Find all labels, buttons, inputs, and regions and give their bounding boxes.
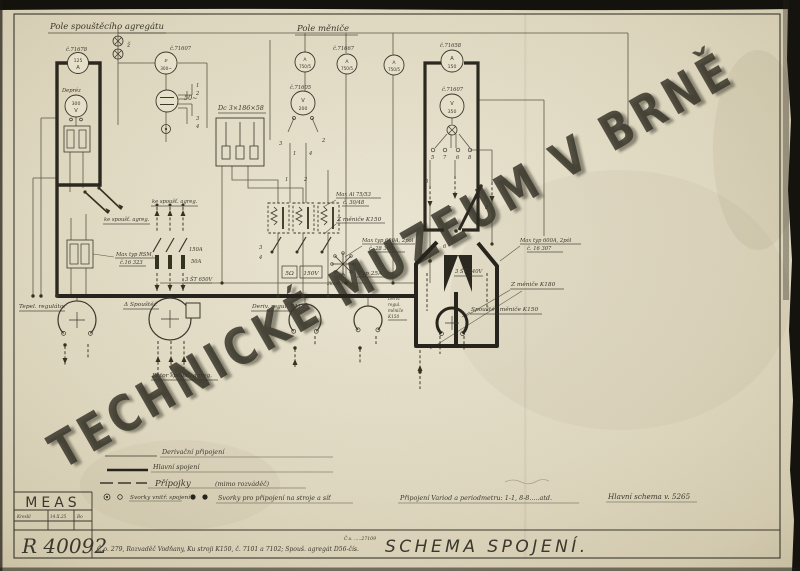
terminal-4: 4 xyxy=(308,151,312,157)
fuse-cartridge xyxy=(181,255,185,269)
typ25-label: Typ 25A xyxy=(358,271,382,277)
rating-5ohm: 5Ω xyxy=(285,271,294,277)
junction-dot xyxy=(479,184,483,188)
legend-terminal-symbol-dot xyxy=(106,496,108,498)
dc-block-label: Dc 3×186×58 xyxy=(217,104,264,112)
drawing-title: SCHEMA SPOJENÍ. xyxy=(385,535,589,557)
legend-machine-terminal-symbol xyxy=(202,494,207,499)
deriv-k150-label-2: regul. xyxy=(388,302,401,307)
terminal-2: 2 xyxy=(321,138,325,144)
junction-dot xyxy=(428,259,432,263)
ammeter-71678-label: č.71678 xyxy=(66,46,88,53)
junction-dot xyxy=(321,251,324,254)
legend-main-label: Hlavní spojení xyxy=(152,463,200,471)
junction-dot xyxy=(344,281,347,284)
drawing-number: R 40092 xyxy=(21,534,107,558)
legend-terminals-int-label: Svorky vnitř. spojení xyxy=(130,494,191,501)
junction-dot xyxy=(83,190,86,193)
drawer-initials: Bo xyxy=(76,514,83,519)
drawing-date: 14.X.25 xyxy=(50,514,67,519)
deprez-label: Depréz xyxy=(61,87,81,94)
to-starter-mid-label: ke spoušť. agreg. xyxy=(152,198,198,205)
al-label-2: č. 30/48 xyxy=(343,199,365,206)
scan-edge-bottom xyxy=(0,568,800,571)
legend-machine-terminal-symbol xyxy=(190,494,195,499)
converter-field-title: Pole měniče xyxy=(296,23,349,34)
from-k150-label: Z měniče K150 xyxy=(336,216,382,223)
wire-label-5: 5 xyxy=(425,179,428,185)
ammeter-71667-label: č.71667 xyxy=(333,45,355,52)
freqmeter-range: 300~ xyxy=(160,66,172,71)
junction-dot xyxy=(97,186,100,189)
fuse-150a-label: 150A xyxy=(189,247,203,253)
drawing-subject: Č.o. 279, Rozvaděč Vodňany, Ku stroji K1… xyxy=(97,543,359,553)
max600a-label-2: č. 28 309 xyxy=(369,245,394,252)
to-starter-label: ke spoušť. agreg. xyxy=(104,216,150,223)
junction-dot xyxy=(296,251,299,254)
al-label-1: Max Al 75/53 xyxy=(335,192,372,198)
ammeter-71678-unit: A xyxy=(76,65,80,71)
max600a-label-1: Max typ 600A, 2pól xyxy=(361,237,414,244)
voltmeter-200-label: č.71605 xyxy=(290,84,311,91)
max600b-label-1: Max typ 600A, 2pól xyxy=(519,237,572,244)
aux-instrument-dot xyxy=(165,128,167,130)
st240-label: 3 ŠT 240V xyxy=(455,267,484,275)
legend-main-schema-note: Hlavní schema v. 5265 xyxy=(607,492,691,501)
voltmeter-300-value: 300 xyxy=(72,101,81,107)
fuse-50a-label: 50A xyxy=(191,259,202,265)
ammeter-71678-value: 125 xyxy=(74,58,83,64)
deriv-k150-label-1: Deriv. xyxy=(387,296,400,301)
wire-label-4: 4 xyxy=(258,255,262,261)
scanned-schematic-page: TECHNICKÉ MUZEUM V BRNĚ TECHNICKÉ MUZEUM… xyxy=(0,0,800,571)
wire-label-1: 1 xyxy=(285,177,288,183)
scan-edge-top xyxy=(0,0,800,10)
tepel-label: Tepel. regulátor xyxy=(19,303,67,310)
lamp-label: ž xyxy=(126,41,131,49)
fuse-cartridge xyxy=(155,255,159,269)
delta-starter-tab xyxy=(186,303,200,318)
junction-dot xyxy=(454,229,458,233)
ammeter-150-unit: A xyxy=(450,56,454,62)
max600b-label-2: č. 16 307 xyxy=(527,245,552,252)
legend-deriv-label: Derivační připojení xyxy=(161,448,225,456)
sync-relay xyxy=(156,90,178,112)
ammeter-150-range: 150 xyxy=(448,64,457,70)
junction-dot xyxy=(418,370,421,373)
rating-2ks6: 2ks 6 xyxy=(326,281,340,287)
junction-dot xyxy=(39,294,42,297)
terminal-5: 5 xyxy=(431,155,434,161)
legend-variod-note: Připojení Variod a periodmetru: 1-1, 8-8… xyxy=(399,494,552,502)
terminal-1: 1 xyxy=(196,83,199,89)
from-k180-label: Z měniče K180 xyxy=(510,281,556,288)
delta-starter-label: Δ Spouštěč xyxy=(123,301,158,308)
voltmeter-200-unit: V xyxy=(301,98,305,104)
junction-dot xyxy=(271,251,274,254)
ammeter-71667-range: 750/5 xyxy=(341,66,353,71)
ammeter-150-label: č.71658 xyxy=(440,42,462,49)
company-logo: MEAS xyxy=(25,495,80,511)
rotary-switch-star xyxy=(332,253,354,275)
legend-ext-label: Přípojky xyxy=(154,478,191,489)
voltmeter-200-range: 200 xyxy=(299,106,308,112)
scan-edge-left xyxy=(0,0,3,571)
schematic-drawing: TECHNICKÉ MUZEUM V BRNĚ TECHNICKÉ MUZEUM… xyxy=(0,0,800,571)
voltmeter-350-unit: V xyxy=(450,101,454,107)
junction-dot xyxy=(391,281,394,284)
rotor-label: Rotor spoušť. agreg. xyxy=(151,372,212,379)
scan-edge-right-shade xyxy=(783,0,789,300)
rating-150v: 150V xyxy=(303,271,319,277)
deriv-k150-label-3: měniče xyxy=(388,308,404,313)
voltmeter-350-range: 350 xyxy=(448,109,457,115)
terminal-1: 1 xyxy=(293,151,296,157)
junction-dot xyxy=(490,242,493,245)
kreslil-label: Kreslil xyxy=(16,514,31,519)
voltmeter-300-unit: V xyxy=(74,108,78,114)
junction-dot xyxy=(31,294,34,297)
ammeter-750-left-range: 750/5 xyxy=(299,64,311,69)
starter-field-title: Pole spouštěcího agregátu xyxy=(49,21,164,32)
junction-dot xyxy=(55,294,59,298)
rsm-label-1: Max typ RSM, xyxy=(115,252,154,258)
junction-dot xyxy=(276,294,279,297)
junction-dot xyxy=(358,346,361,349)
fuse-650v-label: 3 ŠT 650V xyxy=(185,275,214,283)
rsm-label-2: č.16 323 xyxy=(120,259,143,266)
fuse-cartridge xyxy=(168,255,172,269)
ammeter-750-right-range: 750/5 xyxy=(388,67,400,72)
junction-dot xyxy=(220,281,223,284)
wire-label-2: 2 xyxy=(303,177,307,183)
terminal-4: 4 xyxy=(195,124,199,130)
legend-ext2-label: (mimo rozváděč) xyxy=(215,480,270,488)
junction-dot xyxy=(63,343,66,346)
voltmeter-350-label: č.71607 xyxy=(442,86,464,93)
junction-dot xyxy=(301,294,304,297)
freqmeter-label: č.71607 xyxy=(170,45,192,52)
junction-dot xyxy=(326,294,329,297)
starter-k150-label: Spouštěč měniče K150 xyxy=(471,306,538,313)
deriv7415-label: Deriv. regul. 7415 xyxy=(251,304,305,310)
legend-terminals-ext-label: Svorky pro připojení na stroje a síť xyxy=(218,494,332,502)
terminal-2: 2 xyxy=(195,91,199,97)
deriv-k150-label-4: K150 xyxy=(387,314,399,319)
junction-dot xyxy=(293,346,296,349)
